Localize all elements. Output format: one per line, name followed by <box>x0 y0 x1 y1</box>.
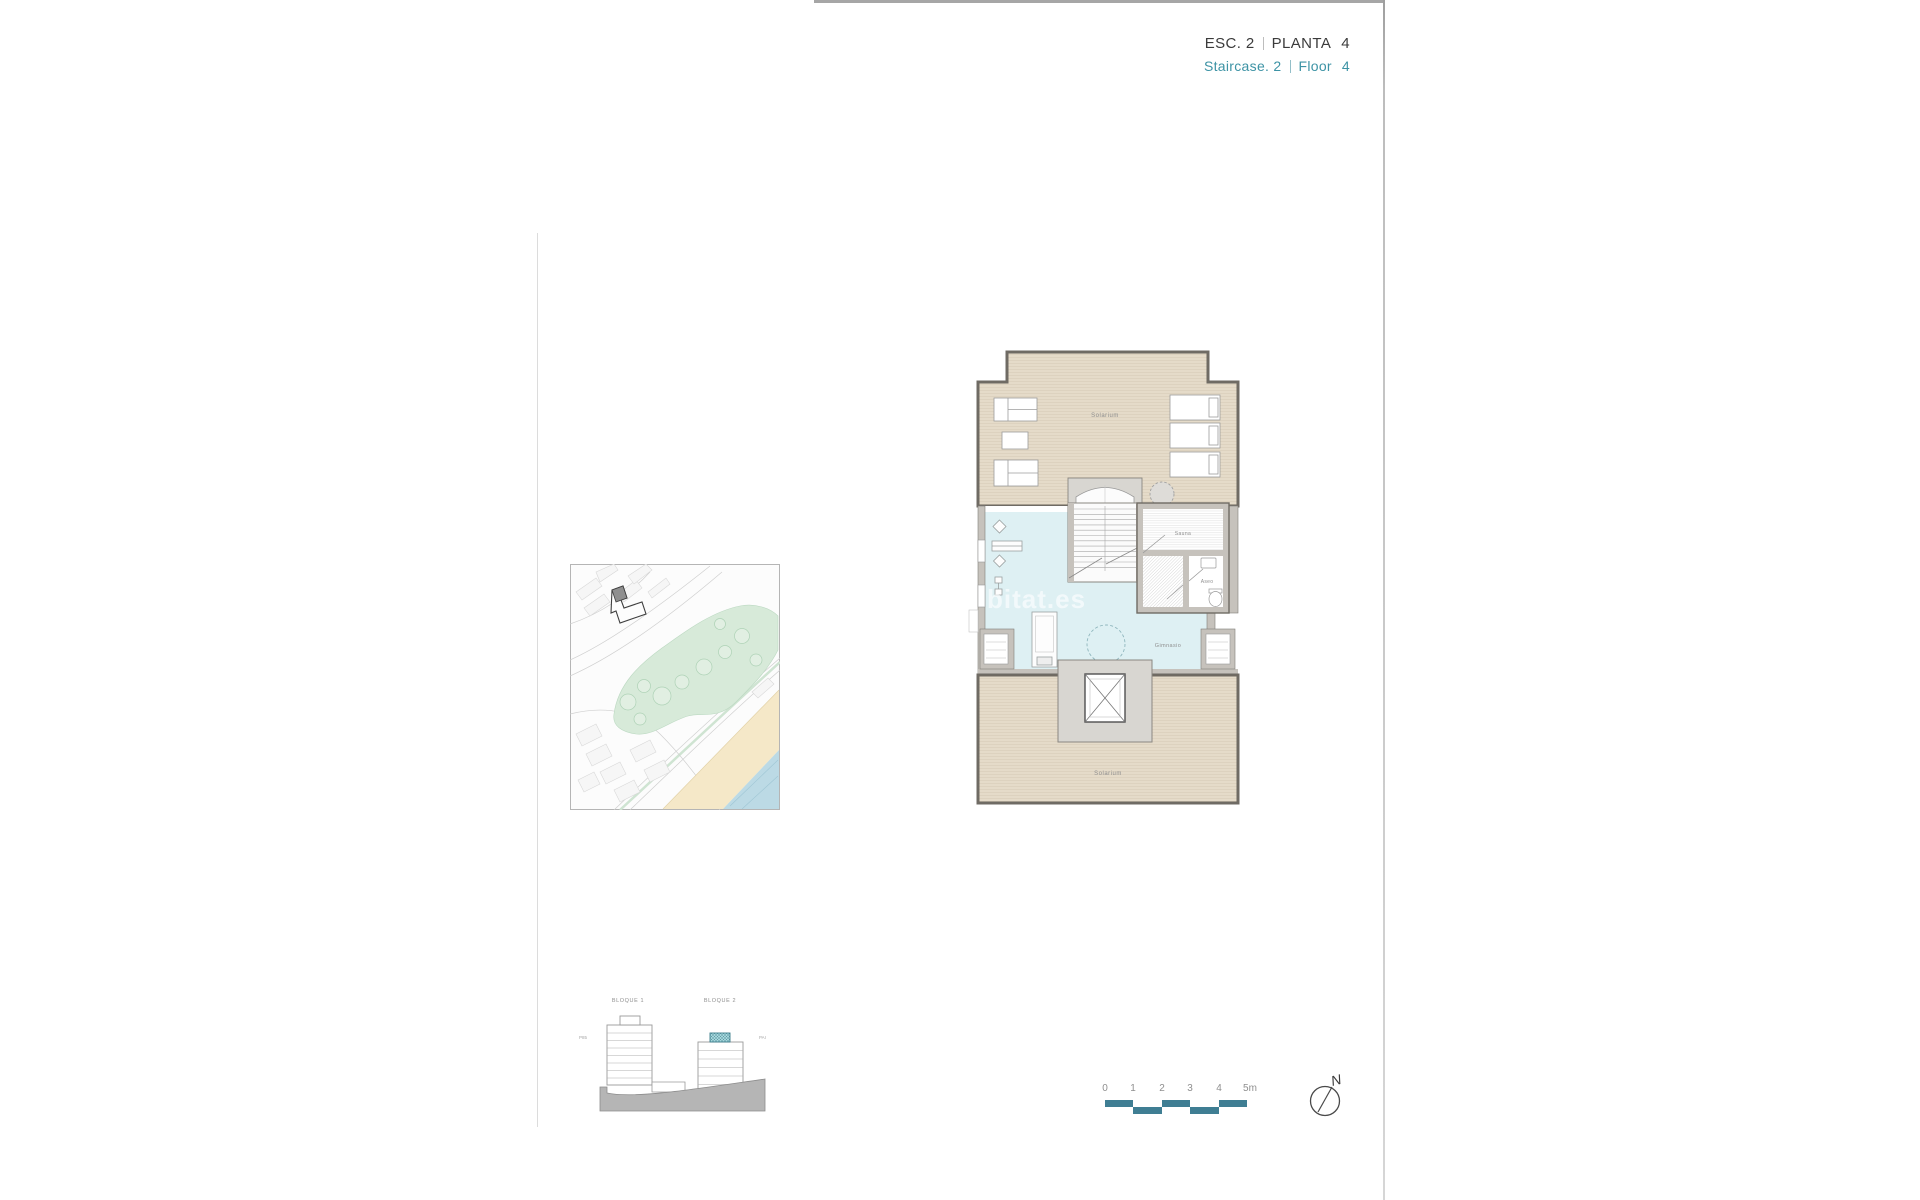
floor-value: 4 <box>1342 58 1350 74</box>
plan-sheet: ESC. 2PLANTA4 Staircase. 2Floor4 <box>0 0 1920 1200</box>
elevator-shaft <box>1058 660 1152 742</box>
sink <box>1201 558 1216 568</box>
plan-header: ESC. 2PLANTA4 Staircase. 2Floor4 <box>1050 36 1350 73</box>
left-level-note: P85 <box>579 1035 588 1040</box>
header-en-line: Staircase. 2Floor4 <box>1050 59 1350 73</box>
solarium-bottom-terrace: Solarium <box>978 660 1238 803</box>
compass-needle <box>1318 1087 1332 1112</box>
header-separator <box>1290 60 1291 73</box>
image-border-right <box>1383 0 1385 1200</box>
sun-loungers-right <box>1170 395 1220 477</box>
toilet <box>1209 592 1222 607</box>
right-level-note: PAI <box>759 1035 766 1040</box>
building-section: BLOQUE 1 BLOQUE 2 P85 PAI <box>575 990 775 1120</box>
sheet-divider-line <box>537 233 538 1127</box>
floor-plan: Solarium <box>967 345 1240 806</box>
scale-bar: 0 1 2 3 4 5m <box>1100 1083 1258 1117</box>
scale-segment <box>1105 1100 1133 1107</box>
staircase <box>1068 503 1142 582</box>
scale-tick: 3 <box>1187 1083 1193 1094</box>
room-label-solarium-top: Solarium <box>1091 413 1119 419</box>
highlighted-floor <box>710 1033 730 1042</box>
bloque2-label: BLOQUE 2 <box>704 998 736 1004</box>
sauna-aseo-block: Sauna Aseo <box>1137 503 1229 613</box>
site-map <box>570 564 780 810</box>
room-label-solarium-bottom: Solarium <box>1094 771 1122 777</box>
north-compass: N <box>1304 1070 1348 1122</box>
watermark: bitat.es <box>987 584 1086 614</box>
north-label: N <box>1329 1071 1344 1089</box>
compass-circle <box>1311 1087 1340 1116</box>
scale-tick: 2 <box>1159 1083 1165 1094</box>
esc-label: ESC. 2 <box>1205 35 1255 52</box>
planta-value: 4 <box>1341 35 1350 52</box>
scale-tick: 4 <box>1216 1083 1222 1094</box>
staircase-label: Staircase. 2 <box>1204 58 1282 74</box>
planta-label: PLANTA <box>1272 35 1332 52</box>
solarium-top-terrace: Solarium <box>978 352 1238 511</box>
scale-tick: 0 <box>1102 1083 1108 1094</box>
scale-tick: 5m <box>1243 1083 1257 1094</box>
scale-segment <box>1190 1107 1218 1114</box>
header-es-line: ESC. 2PLANTA4 <box>1050 36 1350 51</box>
gym-level: Sauna Aseo <box>969 503 1238 675</box>
scale-segment <box>1219 1100 1247 1107</box>
header-separator <box>1263 37 1264 50</box>
image-border-top <box>814 0 1384 3</box>
room-label-aseo: Aseo <box>1201 579 1214 585</box>
room-label-gimnasio: Gimnasio <box>1155 643 1181 649</box>
scale-segment <box>1133 1107 1161 1114</box>
machine-box-left <box>980 629 1014 669</box>
tower-bloque1 <box>607 1016 652 1085</box>
scale-tick: 1 <box>1130 1083 1136 1094</box>
room-label-sauna: Sauna <box>1175 531 1191 537</box>
scale-segment <box>1162 1100 1190 1107</box>
bloque1-label: BLOQUE 1 <box>612 998 644 1004</box>
machine-box-right <box>1201 629 1235 669</box>
floor-label: Floor <box>1299 58 1332 74</box>
